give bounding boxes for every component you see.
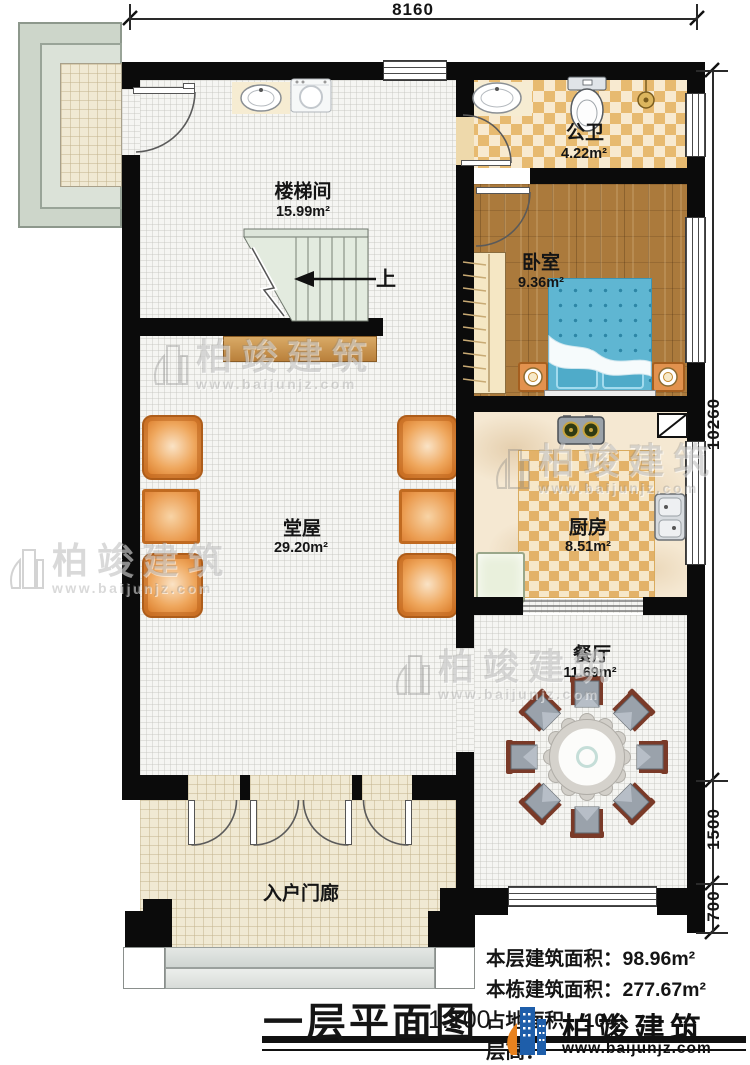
wall-left-upper (122, 62, 140, 89)
room-area-stairwell: 15.99m² (276, 204, 330, 220)
stairwell-vanity-counter (232, 82, 290, 114)
wall-kitchen-dining-left (456, 597, 523, 615)
wall-dining-bottom-left (440, 888, 508, 915)
room-label-dining: 餐厅 (573, 640, 611, 667)
window-kitchen-right (685, 441, 706, 565)
dim-ext-right-4 (696, 932, 728, 934)
wall-bedroom-kitchen (456, 396, 705, 412)
room-label-hall: 堂屋 (283, 514, 321, 541)
brand-logo-icon (497, 1001, 557, 1061)
room-area-hall: 29.20m² (274, 540, 328, 556)
wall-dining-bottom-right (657, 888, 705, 915)
info-building-area-label: 本栋建筑面积： (486, 979, 623, 1001)
wall-porch-stub-2 (352, 775, 362, 800)
floor-plan-canvas: 8160 10260 1500 700 楼梯间 15.99m² 公卫 4.22m… (0, 0, 750, 1065)
wall-stairwell-hall (132, 318, 383, 336)
dim-ext-top-right (696, 4, 698, 30)
wall-center-upper (456, 80, 474, 117)
dim-ext-right-2 (696, 780, 728, 782)
room-label-bedroom: 卧室 (522, 248, 560, 275)
porch-door-opening-2 (250, 775, 352, 800)
watermark-logo-icon (6, 542, 44, 594)
hall-armchair-bottom-left (142, 553, 203, 618)
porch-step-side-right (435, 947, 475, 989)
floor-dining (456, 615, 687, 888)
room-area-bedroom: 9.36m² (518, 275, 564, 291)
bathroom-door-opening (456, 117, 474, 165)
door-leaf-porch-4 (405, 800, 412, 845)
porch-pillar-left (125, 911, 172, 947)
wall-porch-stub-1 (240, 775, 250, 800)
info-building-area-value: 277.67m² (623, 979, 706, 1001)
door-leaf-bathroom (461, 160, 511, 166)
hall-armchair-top-right (397, 415, 458, 480)
bed-pillow-left (556, 363, 598, 389)
window-dining-bottom (508, 886, 657, 907)
wall-kitchen-dining-right (643, 597, 705, 615)
room-label-stairwell: 楼梯间 (274, 177, 331, 204)
kitchen-slider-opening (523, 599, 643, 613)
dim-ext-right-1 (696, 70, 728, 72)
hall-dining-opening (456, 648, 474, 752)
door-leaf-bedroom (476, 187, 530, 194)
door-leaf-porch-2 (250, 800, 257, 845)
porch-door-opening-1 (188, 775, 240, 800)
room-area-dining: 11.69m² (563, 665, 616, 681)
dim-right-middle: 1500 (704, 808, 724, 850)
room-label-kitchen: 厨房 (569, 513, 607, 540)
door-leaf-porch-1 (188, 800, 195, 845)
dim-top-width: 8160 (392, 0, 434, 20)
hall-side-table-left (142, 489, 200, 544)
left-terrace-floor (60, 63, 122, 187)
info-floor-area: 本层建筑面积：98.96m² (486, 942, 695, 971)
wall-porch-1 (122, 775, 188, 800)
hall-side-table-right (399, 489, 457, 544)
porch-step-lower (165, 968, 435, 989)
vent-shaft (657, 413, 688, 438)
room-area-bathroom: 4.22m² (561, 146, 607, 162)
dim-line-right (712, 70, 714, 933)
hall-armchair-top-left (142, 415, 203, 480)
stairs-up-label: 上 (376, 263, 396, 292)
wall-bath-bedroom (530, 168, 705, 184)
porch-step-upper (165, 947, 435, 968)
porch-pillar-right (428, 911, 475, 947)
info-floor-area-label: 本层建筑面积： (486, 948, 623, 970)
dim-ext-right-3 (696, 883, 728, 885)
hall-armchair-bottom-right (397, 553, 458, 618)
brand-url: www.baijunjz.com (562, 1040, 712, 1058)
fridge (476, 552, 525, 603)
room-label-porch: 入户门廊 (263, 879, 339, 906)
nightstand-right (652, 362, 685, 392)
wall-center-lower (456, 752, 474, 888)
nightstand-left (518, 362, 548, 392)
room-label-bathroom: 公卫 (566, 118, 604, 145)
bed-pillow-right (602, 363, 644, 389)
window-bathroom-right (685, 93, 706, 157)
door-leaf-porch-3 (345, 800, 352, 845)
info-building-area: 本栋建筑面积：277.67m² (486, 973, 706, 1002)
wall-porch-2 (412, 775, 468, 800)
room-area-kitchen: 8.51m² (565, 539, 611, 555)
window-top (383, 60, 447, 81)
left-door-opening (122, 89, 140, 155)
dim-right-upper: 10260 (704, 398, 724, 450)
porch-door-opening-3 (362, 775, 412, 800)
window-bedroom-right (685, 217, 706, 363)
porch-step-side-left (123, 947, 165, 989)
door-leaf-stairwell-west-handle (183, 83, 195, 89)
dim-right-lower: 700 (704, 890, 724, 921)
dim-ext-top-left (129, 4, 131, 30)
drawing-scale: 1:100 (428, 1006, 491, 1035)
wall-left (122, 155, 140, 800)
under-stair-cabinet (223, 336, 377, 362)
info-floor-area-value: 98.96m² (623, 948, 696, 970)
